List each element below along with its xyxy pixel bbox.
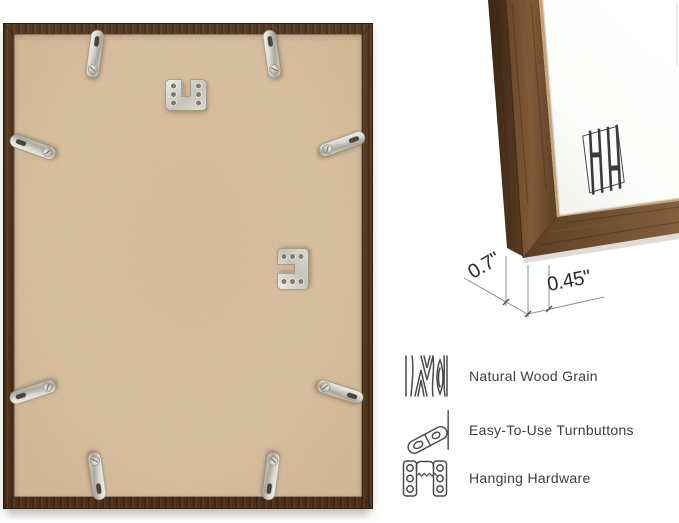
feature-turnbuttons: Easy-To-Use Turnbuttons [402,407,679,453]
feature-label: Easy-To-Use Turnbuttons [469,422,634,438]
wood-grain-icon [402,354,452,398]
feature-label: Natural Wood Grain [469,368,598,384]
face-width-dimension-label: 0.45" [545,266,592,296]
feature-label: Hanging Hardware [469,470,591,486]
turnbutton-icon [402,406,452,454]
hanging-hardware-icon [402,457,452,499]
sawtooth-hanger-middle [277,248,309,290]
feature-wood-grain: Natural Wood Grain [402,353,679,399]
frame-reflection-shadow [8,511,368,519]
product-infographic: 0.7" 0.45" Natural Wood Grain [0,0,679,523]
frame-corner-detail: 0.7" 0.45" [420,0,679,340]
sawtooth-hanger-top [165,79,207,111]
depth-dimension-label: 0.7" [464,248,504,284]
feature-hanging-hardware: Hanging Hardware [402,455,679,501]
